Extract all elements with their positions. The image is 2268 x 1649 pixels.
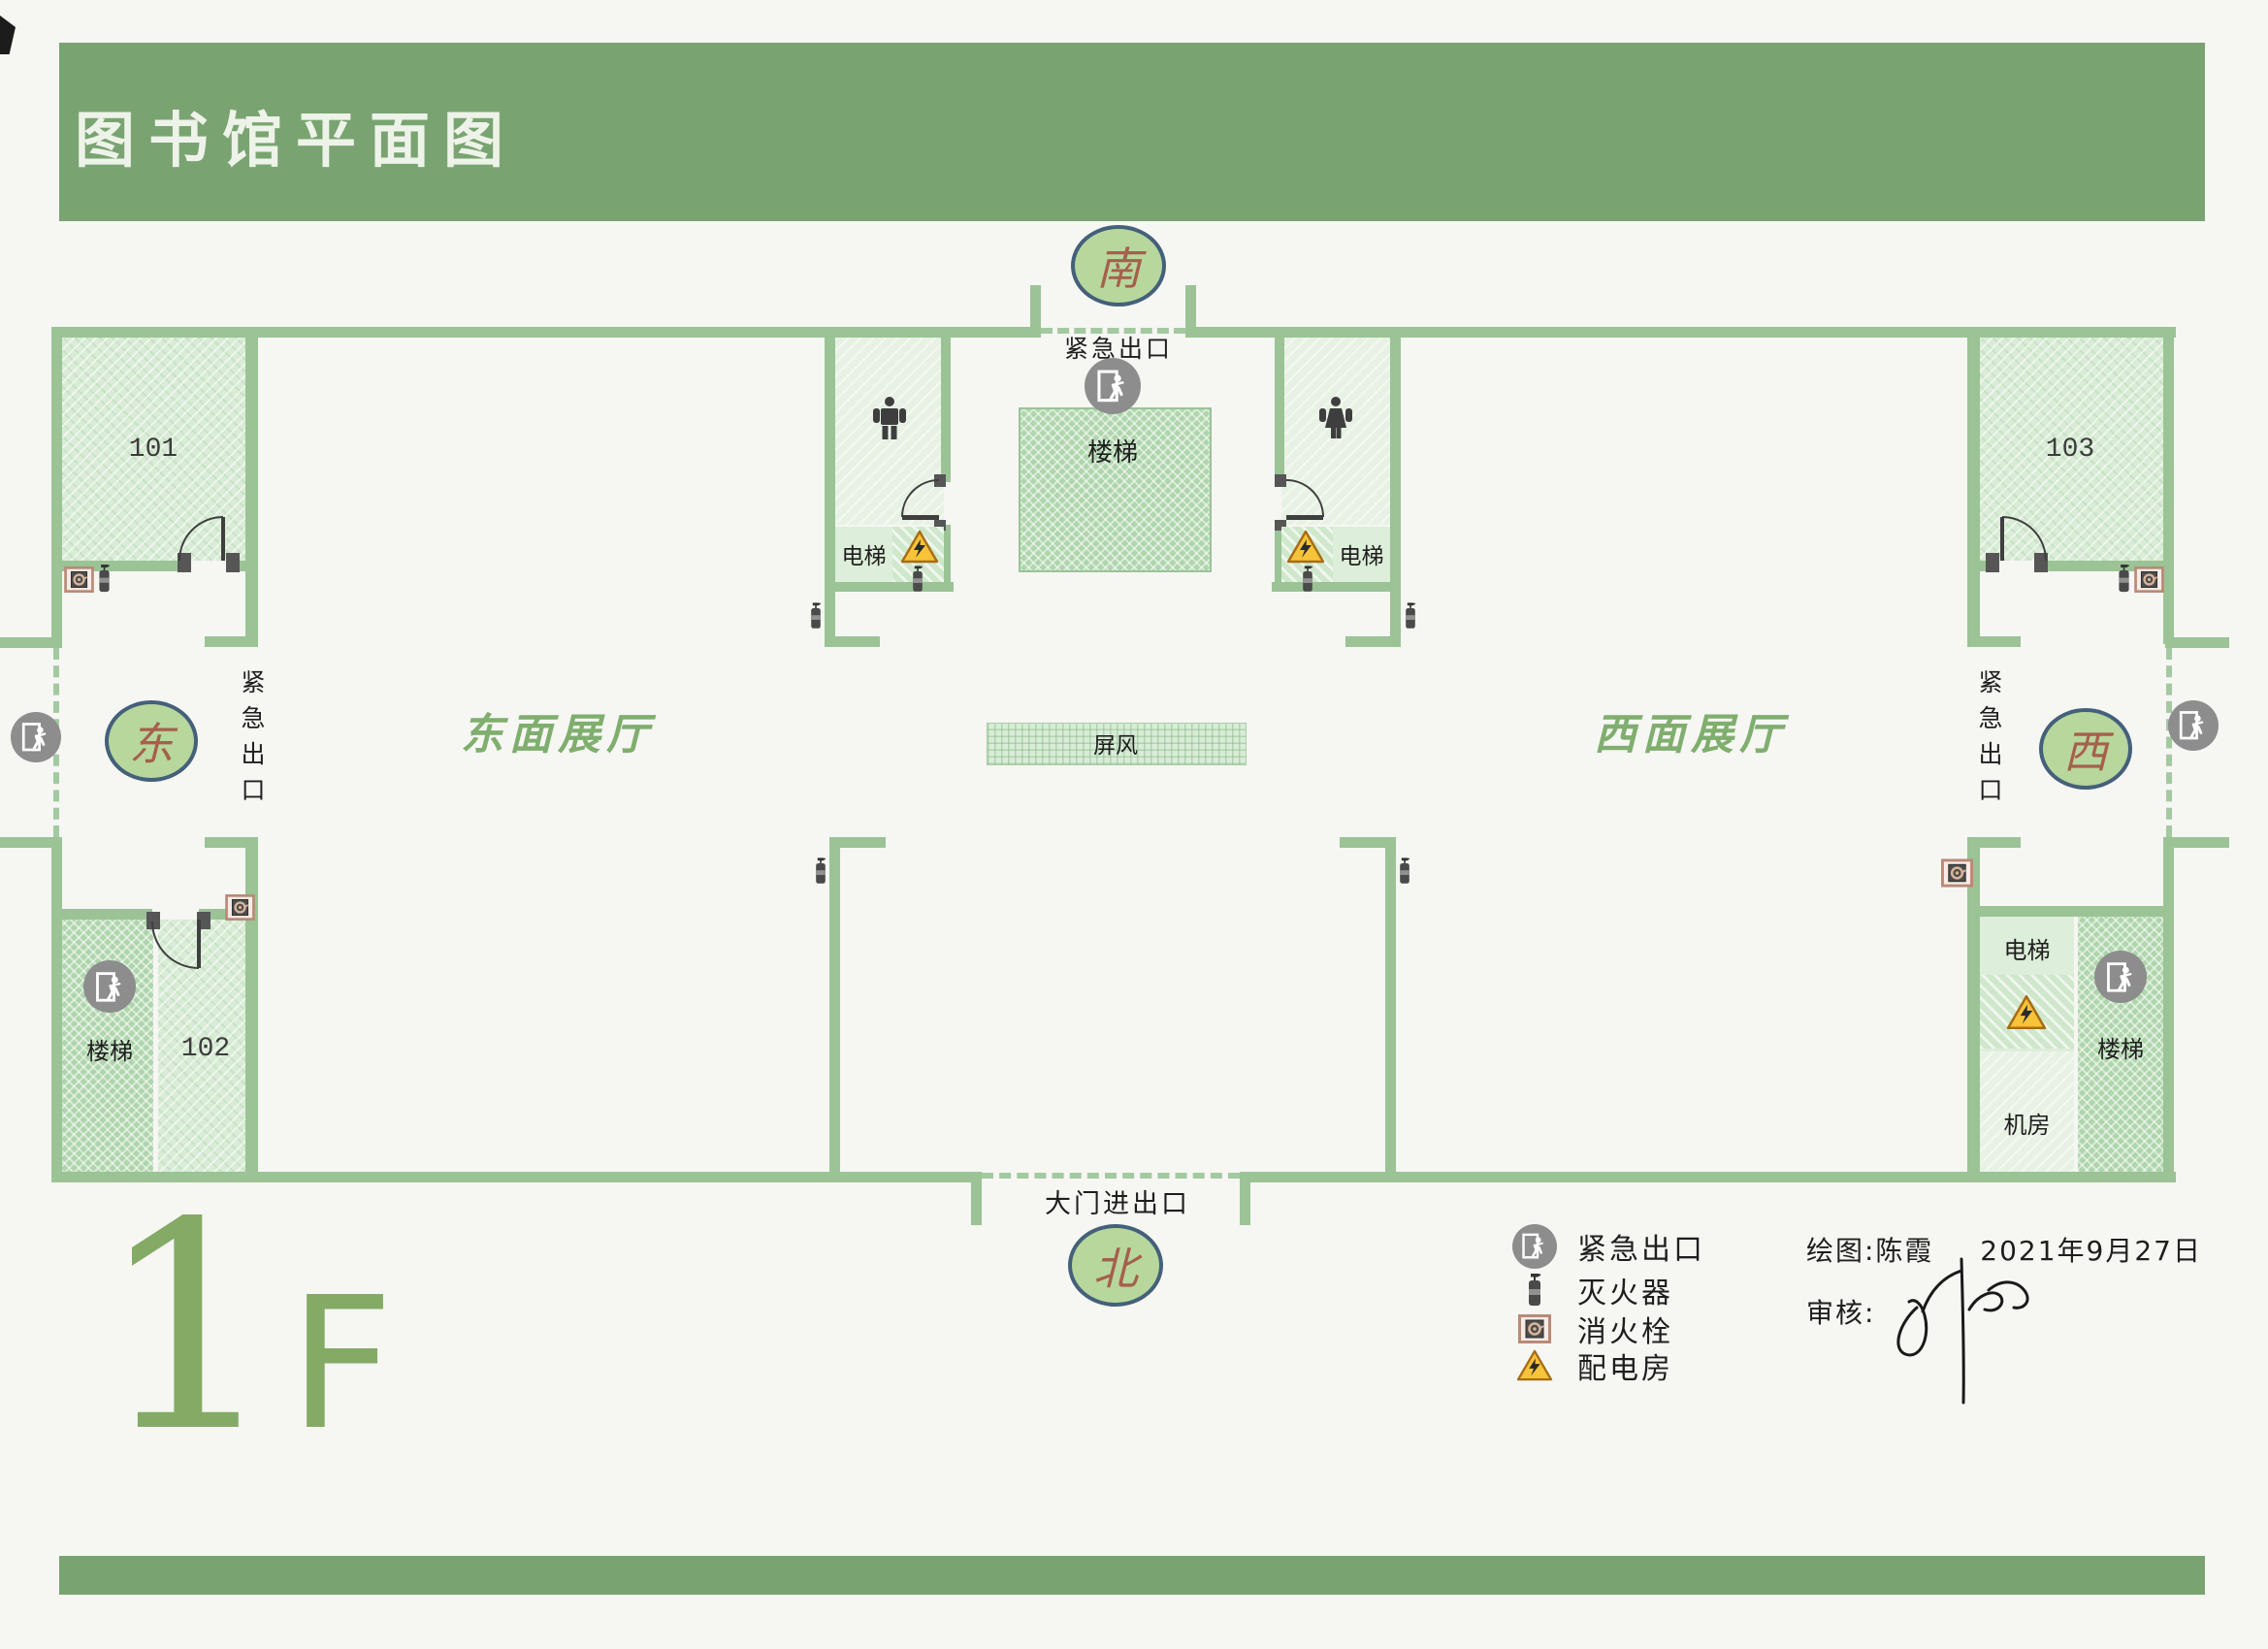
male-restroom-door — [897, 470, 952, 531]
east-exit-stub-top — [0, 637, 62, 648]
emergency-exit-east-label: 紧急出口 — [234, 669, 269, 824]
compass-north: 北 — [1068, 1224, 1163, 1307]
fire-extinguisher-icon — [1403, 601, 1418, 630]
reviewer-signature — [1880, 1247, 2064, 1422]
power-room-icon — [1509, 1349, 1560, 1382]
female-restroom-left-wall-upper — [1275, 338, 1284, 482]
fire-hydrant-icon — [1941, 857, 1973, 889]
power-room-icon — [2006, 994, 2047, 1031]
fire-extinguisher-icon — [813, 857, 828, 886]
room-102-label: 102 — [157, 1034, 254, 1063]
central-block-right-wall — [1390, 338, 1401, 592]
north-entry-post-right — [1240, 1182, 1250, 1225]
emergency-exit-icon — [11, 712, 61, 762]
wall-top-left — [51, 327, 1041, 338]
room-101-label: 101 — [105, 432, 202, 467]
legend-row-power-room: 配电房 — [1509, 1344, 1673, 1387]
wall-left-lower — [51, 837, 62, 1182]
inner-east-stub-top — [205, 636, 258, 647]
central-block-bottom-wall-left — [825, 582, 954, 592]
page-title: 图书馆平面图 — [75, 91, 517, 178]
lobby-left-wall — [829, 837, 840, 1182]
fire-hydrant-icon — [64, 566, 94, 593]
review-label: 审核: — [1806, 1292, 1875, 1331]
emergency-exit-south-label: 紧急出口 — [1051, 334, 1186, 361]
scan-artifact — [0, 16, 16, 54]
machine-room-label: 机房 — [1980, 1108, 2074, 1137]
central-block-left-wall — [825, 338, 835, 592]
south-entry-post-right — [1185, 285, 1196, 338]
main-entrance-label: 大门进出口 — [1001, 1185, 1234, 1216]
north-entry-dashed-line — [982, 1173, 1240, 1179]
room-102-door — [141, 907, 216, 975]
male-restroom-icon — [870, 396, 909, 442]
wall-left-upper — [51, 327, 62, 644]
elevator-left-label: 电梯 — [835, 532, 892, 576]
legend-label: 配电房 — [1577, 1344, 1673, 1387]
central-block-bottom-wall-right — [1272, 582, 1401, 592]
compass-south: 南 — [1071, 225, 1166, 307]
fire-extinguisher-icon — [96, 564, 113, 594]
fire-hydrant-icon — [2134, 566, 2164, 593]
footer-bar — [59, 1556, 2205, 1595]
wall-right-upper — [2163, 327, 2174, 644]
legend-label: 灭火器 — [1577, 1269, 1673, 1311]
fire-extinguisher-icon — [1397, 857, 1412, 886]
emergency-exit-icon — [2094, 951, 2147, 1003]
fire-extinguisher-icon — [1509, 1272, 1560, 1309]
inner-wall-west-lower — [1967, 848, 1980, 1182]
emergency-exit-icon — [1512, 1224, 1557, 1269]
emergency-exit-west-label: 紧急出口 — [1971, 669, 2006, 824]
fire-hydrant-icon — [225, 894, 255, 921]
compass-west: 西 — [2039, 708, 2132, 790]
floor-number-digit: 1 — [97, 1185, 279, 1471]
fire-hydrant-icon — [1509, 1314, 1560, 1343]
fire-extinguisher-icon — [1300, 565, 1315, 594]
sw-block-top-wall-left — [62, 909, 152, 920]
inner-wall-east-upper — [245, 327, 258, 647]
central-stairs-label: 楼梯 — [1054, 435, 1171, 466]
inner-east-stub-bottom — [205, 837, 258, 848]
power-room-icon — [1286, 530, 1325, 565]
inner-west-stub-top — [1967, 636, 2021, 647]
se-stairs-label: 楼梯 — [2072, 1032, 2169, 1061]
emergency-exit-icon — [83, 960, 136, 1013]
room-103-door — [1980, 510, 2057, 574]
west-exit-dashed-line — [2166, 648, 2172, 837]
compass-east: 东 — [105, 700, 198, 782]
lobby-right-wall — [1385, 837, 1396, 1182]
wall-right-lower — [2163, 837, 2174, 1182]
screen-label: 屏风 — [1057, 729, 1174, 757]
east-hall-label: 东面展厅 — [417, 705, 698, 756]
female-restroom-icon — [1316, 396, 1355, 442]
inner-wall-west-upper — [1967, 327, 1980, 647]
female-restroom-door — [1275, 470, 1329, 531]
south-entry-post-left — [1030, 285, 1041, 338]
title-bar: 图书馆平面图 — [59, 43, 2205, 221]
power-room-icon — [900, 530, 939, 565]
wall-bottom-right — [1240, 1172, 2176, 1182]
inner-west-stub-bottom — [1967, 837, 2021, 848]
east-exit-stub-bottom — [0, 837, 62, 848]
legend-row-fire-extinguisher: 灭火器 — [1509, 1269, 1673, 1311]
male-restroom-right-wall-upper — [941, 338, 951, 482]
west-exit-stub-bottom — [2165, 837, 2229, 848]
central-stub-left-foot — [825, 636, 880, 647]
floor-number: 1 F — [97, 1185, 394, 1471]
fire-extinguisher-icon — [808, 601, 824, 630]
legend-row-emergency-exit: 紧急出口 — [1509, 1224, 1705, 1269]
sw-stairs-label: 楼梯 — [61, 1034, 158, 1063]
se-elevator-label: 电梯 — [1980, 933, 2074, 962]
room-101-door — [173, 510, 243, 574]
emergency-exit-icon — [2168, 700, 2219, 751]
legend-label: 紧急出口 — [1577, 1225, 1705, 1268]
lobby-left-foot — [829, 837, 886, 848]
lobby-right-foot — [1340, 837, 1396, 848]
west-exit-stub-top — [2165, 637, 2229, 648]
west-hall-label: 西面展厅 — [1550, 705, 1831, 756]
elevator-right-label: 电梯 — [1333, 532, 1390, 576]
central-stub-right-foot — [1345, 636, 1401, 647]
north-entry-post-left — [971, 1182, 982, 1225]
wall-top-right — [1185, 327, 2176, 338]
room-103-label: 103 — [2022, 432, 2119, 467]
fire-extinguisher-icon — [910, 565, 925, 594]
floor-number-letter: F — [289, 1274, 394, 1456]
emergency-exit-icon — [1085, 358, 1141, 414]
se-block-top-wall — [1980, 906, 2163, 917]
fire-extinguisher-icon — [2116, 564, 2132, 594]
